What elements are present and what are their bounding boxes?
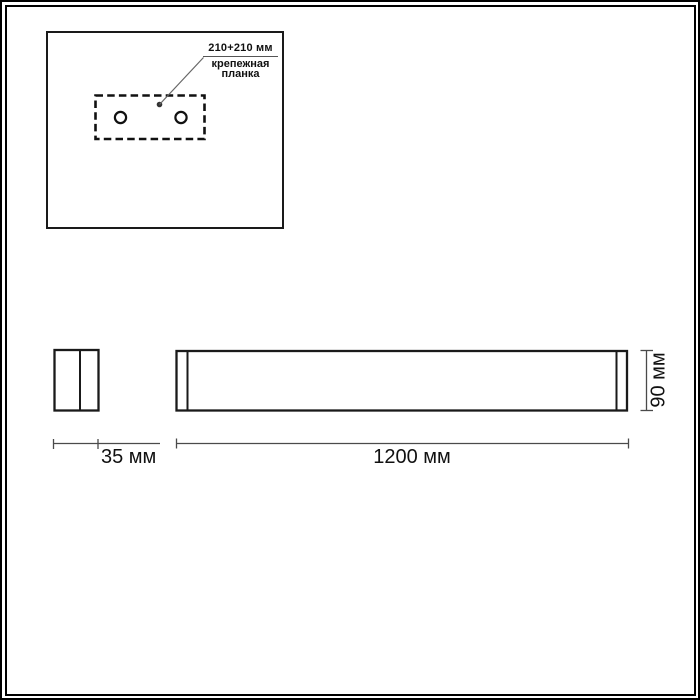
annotation-dimension-text: 210+210 мм bbox=[203, 42, 278, 57]
drawing-canvas: 210+210 мм крепежная планка 35 мм 1200 м… bbox=[0, 0, 700, 700]
mounting-plate-annotation: 210+210 мм крепежная планка bbox=[203, 42, 278, 79]
label-depth-dimension: 35 мм bbox=[101, 446, 156, 469]
annotation-caption-line2: планка bbox=[221, 68, 259, 80]
label-length-dimension: 1200 мм bbox=[336, 446, 488, 469]
label-height-dimension: 90 мм bbox=[648, 352, 671, 407]
annotation-caption-text: крепежная планка bbox=[203, 57, 278, 79]
